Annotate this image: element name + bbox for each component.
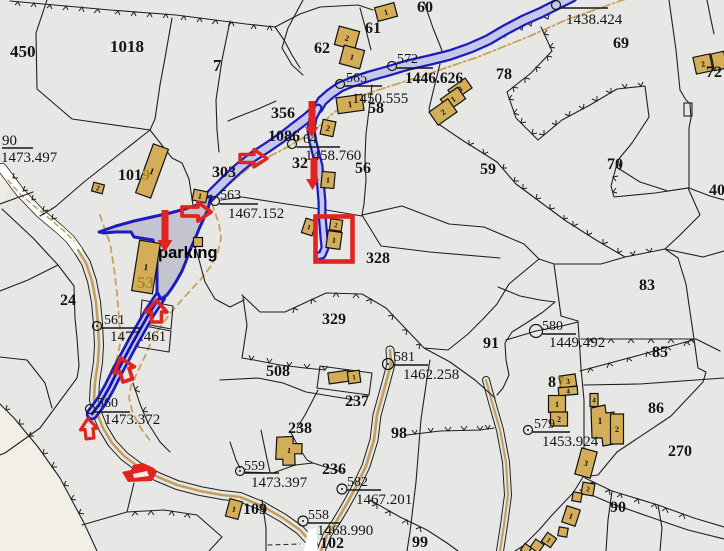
svg-text:1446.626: 1446.626 [405, 70, 463, 87]
svg-text:1: 1 [326, 176, 331, 185]
svg-text:1449.492: 1449.492 [549, 335, 605, 351]
svg-text:83: 83 [639, 277, 655, 294]
svg-text:559: 559 [244, 459, 265, 474]
svg-text:85: 85 [652, 344, 668, 361]
svg-text:90: 90 [610, 499, 626, 516]
svg-text:565: 565 [346, 71, 367, 86]
svg-text:90: 90 [2, 133, 17, 149]
svg-text:560: 560 [97, 396, 118, 411]
svg-text:7: 7 [557, 374, 565, 391]
svg-text:91: 91 [483, 335, 499, 352]
svg-text:329: 329 [322, 311, 346, 328]
svg-text:582: 582 [347, 475, 368, 490]
svg-text:1473.397: 1473.397 [251, 475, 308, 491]
svg-text:561: 561 [104, 313, 125, 328]
svg-text:4: 4 [592, 396, 596, 404]
svg-text:581: 581 [394, 350, 415, 365]
svg-text:99: 99 [412, 534, 428, 551]
svg-text:24: 24 [60, 292, 76, 309]
svg-text:1473.497: 1473.497 [1, 150, 58, 166]
svg-text:236: 236 [322, 461, 346, 478]
svg-text:1018: 1018 [110, 37, 144, 56]
svg-text:1467.201: 1467.201 [356, 492, 412, 508]
svg-text:60: 60 [417, 0, 433, 16]
svg-text:558: 558 [308, 508, 329, 523]
svg-text:1462.258: 1462.258 [403, 367, 459, 383]
svg-text:2: 2 [557, 415, 561, 424]
svg-text:1: 1 [555, 400, 559, 409]
svg-text:7: 7 [213, 56, 222, 75]
svg-text:98: 98 [391, 425, 407, 442]
svg-text:9: 9 [142, 167, 150, 184]
svg-text:508: 508 [266, 363, 290, 380]
svg-text:356: 356 [271, 105, 295, 122]
svg-text:62: 62 [314, 40, 330, 57]
svg-text:1086: 1086 [268, 128, 300, 145]
svg-text:237: 237 [345, 393, 369, 410]
svg-text:579: 579 [534, 417, 555, 432]
svg-text:86: 86 [648, 400, 664, 417]
svg-text:450: 450 [10, 42, 36, 61]
svg-text:563: 563 [220, 188, 241, 203]
svg-text:1473.372: 1473.372 [104, 412, 160, 428]
svg-text:2: 2 [615, 425, 619, 434]
svg-text:70: 70 [607, 156, 623, 173]
svg-text:72: 72 [706, 64, 722, 81]
svg-text:1438.424: 1438.424 [566, 12, 623, 28]
svg-text:1467.152: 1467.152 [228, 206, 284, 222]
svg-text:59: 59 [480, 161, 496, 178]
svg-text:61: 61 [365, 20, 381, 37]
svg-text:101: 101 [118, 167, 142, 184]
svg-text:69: 69 [613, 35, 629, 52]
svg-text:270: 270 [668, 443, 692, 460]
svg-text:1477.461: 1477.461 [110, 329, 166, 345]
svg-text:40: 40 [709, 182, 724, 199]
svg-text:109: 109 [243, 501, 267, 518]
svg-text:1450.555: 1450.555 [352, 91, 408, 107]
svg-text:328: 328 [366, 250, 390, 267]
svg-text:303: 303 [212, 164, 236, 181]
svg-text:1453.924: 1453.924 [542, 434, 599, 450]
svg-text:238: 238 [288, 420, 312, 437]
svg-text:1: 1 [598, 416, 603, 426]
svg-text:580: 580 [542, 319, 563, 334]
svg-text:53: 53 [137, 273, 154, 292]
svg-text:78: 78 [496, 66, 512, 83]
svg-text:8: 8 [548, 374, 556, 391]
svg-text:1468.990: 1468.990 [317, 523, 373, 539]
svg-text:572: 572 [397, 52, 418, 67]
